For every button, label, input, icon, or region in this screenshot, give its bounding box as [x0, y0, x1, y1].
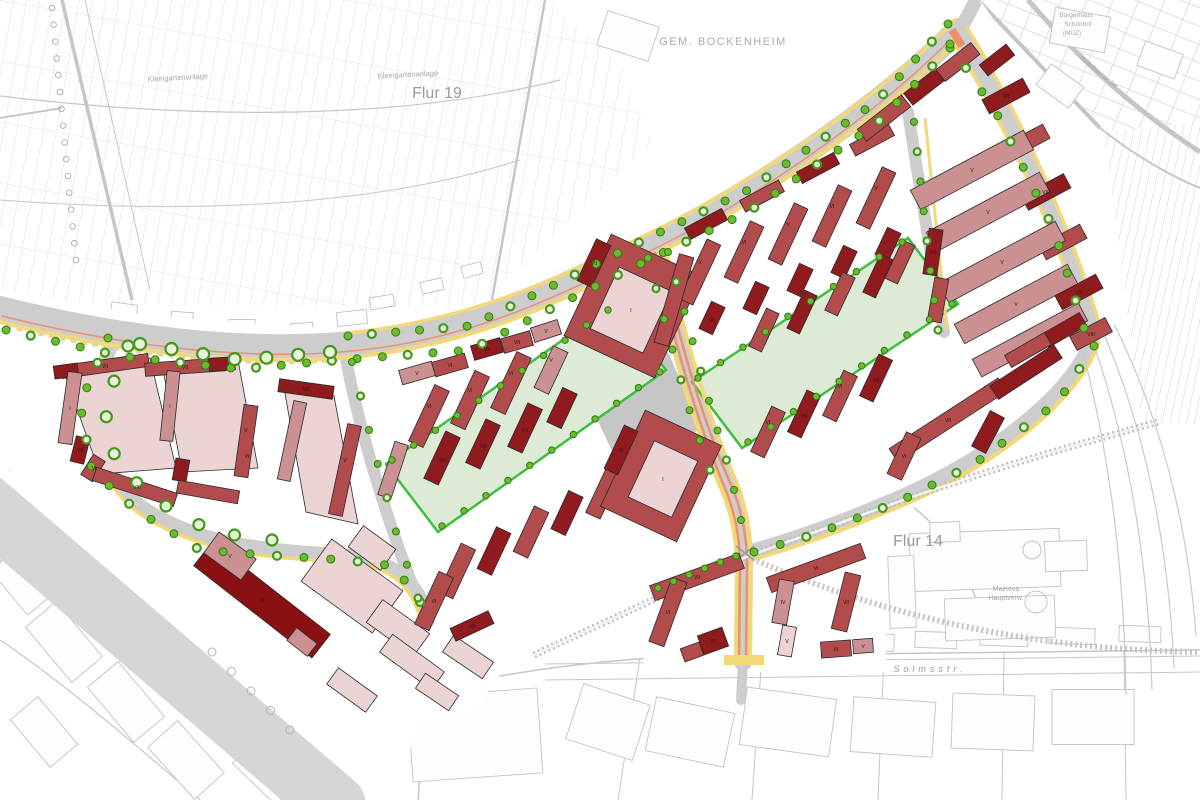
tree-symbol [344, 332, 352, 340]
tree-symbol [861, 106, 869, 114]
storey-label: IV [781, 600, 786, 606]
storey-label: XI [260, 598, 265, 604]
tree-symbol [686, 407, 693, 414]
tree-symbol [802, 533, 810, 541]
tree-symbol [895, 73, 903, 81]
tree-symbol [670, 578, 676, 584]
storey-label: VI [838, 384, 843, 390]
tree-symbol [614, 249, 622, 257]
tree-symbol [1019, 163, 1027, 171]
tree-symbol [101, 349, 109, 357]
tree-symbol [463, 322, 471, 330]
tree-symbol [415, 595, 422, 602]
storey-label: VI [448, 363, 453, 369]
tree-symbol [740, 344, 746, 350]
storey-label: VI [814, 566, 819, 572]
site-plan-map: VIIIVIIVIVIIIVIIIVVIVIIVXIVVVIVIIVIIVVIV… [0, 0, 1200, 800]
tree-symbol [926, 316, 932, 322]
storey-label: VII [801, 414, 807, 420]
tree-symbol [105, 482, 113, 490]
cadastral-building-outline [951, 693, 1035, 751]
storey-label: VI [92, 466, 97, 472]
storey-label: I [69, 406, 70, 412]
storey-label: VI [666, 610, 671, 616]
tree-symbol [505, 477, 511, 483]
cadastral-building-outline [1119, 625, 1162, 642]
tree-symbol [400, 576, 408, 584]
tree-symbol [416, 326, 424, 334]
storey-label: I [169, 404, 170, 410]
tree-symbol [879, 90, 887, 98]
cadastral-building-outline [10, 697, 77, 768]
tree-symbol [383, 494, 390, 501]
tree-symbol [911, 80, 919, 88]
tree-symbol [583, 322, 589, 328]
tree-symbol [76, 343, 84, 351]
tree-symbol [527, 462, 533, 468]
tree-symbol [696, 437, 703, 444]
tree-symbol [834, 146, 842, 154]
tree-symbol [1020, 423, 1028, 431]
tree-symbol [151, 356, 159, 364]
cadastral-building-outline [888, 556, 916, 629]
storey-label: III [834, 647, 838, 653]
tree-symbol [411, 442, 417, 448]
tree-symbol [109, 448, 120, 459]
tree-symbol [924, 237, 931, 244]
tree-symbol [109, 376, 120, 387]
tree-symbol [927, 267, 934, 274]
tree-symbol [126, 353, 134, 361]
tree-symbol [1075, 365, 1083, 373]
tree-symbol [678, 218, 686, 226]
tree-symbol [523, 317, 531, 325]
tree-symbol [705, 397, 712, 404]
tree-symbol [743, 187, 751, 195]
tree-symbol [822, 133, 830, 141]
tree-symbol [368, 330, 376, 338]
storey-label: VII [484, 347, 490, 353]
tree-symbol [714, 427, 721, 434]
tree-symbol [546, 305, 554, 313]
tree-symbol [614, 271, 622, 279]
tree-symbol [689, 338, 696, 345]
tree-symbol [976, 456, 984, 464]
cadastral-street-line [545, 672, 1200, 680]
tree-symbol [717, 559, 723, 565]
tree-symbol [392, 528, 399, 535]
tree-symbol [476, 397, 482, 403]
tree-symbol [354, 558, 362, 566]
tree-symbol [802, 146, 810, 154]
tree-symbol [792, 175, 800, 183]
tree-symbol [912, 55, 920, 63]
storey-label: VI [619, 448, 624, 454]
tree-symbol [750, 204, 758, 212]
tree-symbol [260, 352, 272, 364]
tree-symbol [83, 384, 91, 392]
tree-symbol [917, 178, 924, 185]
storey-label: VI [902, 454, 907, 460]
tree-symbol [962, 64, 970, 72]
tree-symbol [125, 500, 133, 508]
tree-symbol [454, 347, 462, 355]
storey-label: VI [468, 388, 473, 394]
tree-symbol [519, 367, 525, 373]
tree-symbol [273, 552, 281, 560]
map-label: Solmsstr. [893, 664, 966, 674]
tree-symbol [723, 457, 730, 464]
tree-symbol [673, 278, 680, 285]
tree-symbol [1061, 388, 1069, 396]
storey-label: VII [694, 575, 700, 581]
tree-symbol [229, 353, 241, 365]
tree-symbol [635, 384, 641, 390]
tree-symbol [591, 282, 599, 290]
tree-symbol [853, 514, 861, 522]
tree-symbol [366, 427, 373, 434]
storey-label: VI [766, 420, 771, 426]
tree-symbol [614, 400, 620, 406]
tree-symbol [454, 412, 460, 418]
tree-symbol [830, 283, 836, 289]
tree-symbol [549, 281, 557, 289]
tree-symbol [123, 341, 134, 352]
tree-symbol [202, 361, 210, 369]
tree-symbol [219, 548, 227, 556]
cadastral-building-outline [739, 687, 836, 757]
tree-symbol [429, 349, 437, 357]
tree-symbol [439, 324, 447, 332]
tree-symbol [700, 207, 708, 215]
tree-symbol [978, 88, 986, 96]
cadastral-building-outline [1044, 540, 1087, 571]
tree-symbol [828, 524, 836, 532]
tree-symbol [378, 353, 386, 361]
tree-symbol [653, 285, 660, 292]
storey-label: VII [469, 624, 475, 630]
tree-symbol [349, 359, 356, 366]
cadastral-region [1104, 122, 1200, 424]
tree-symbol [1045, 215, 1053, 223]
tree-symbol [807, 298, 813, 304]
tree-symbol [252, 364, 260, 372]
tree-symbol [686, 572, 692, 578]
tree-symbol [1042, 407, 1050, 415]
tree-symbol [170, 530, 178, 538]
tree-symbol [501, 328, 509, 336]
tree-symbol [813, 393, 819, 399]
storey-label: VII [873, 378, 879, 384]
tree-symbol [635, 239, 643, 247]
tree-symbol [357, 393, 364, 400]
tree-symbol [166, 343, 178, 355]
tree-symbol [549, 447, 555, 453]
tree-symbol [881, 347, 887, 353]
tree-symbol [879, 504, 887, 512]
tree-symbol [392, 328, 400, 336]
storey-label: VI [830, 204, 835, 210]
tree-symbol [197, 348, 209, 360]
tree-symbol [695, 375, 701, 381]
cadastral-building-outline [850, 697, 936, 758]
cadastral-building-outline [944, 595, 1055, 641]
tree-symbol [762, 173, 770, 181]
storey-label: VII [945, 418, 951, 424]
tree-symbol [855, 132, 863, 140]
tree-symbol [733, 553, 739, 559]
tree-symbol [745, 439, 751, 445]
tree-symbol [946, 40, 954, 48]
tree-symbol [2, 326, 10, 334]
tree-symbol [327, 555, 335, 563]
tree-symbol [300, 553, 308, 561]
storey-label: VII [709, 318, 715, 324]
tree-symbol [944, 20, 952, 28]
tree-symbol [292, 349, 304, 361]
tree-symbol [324, 346, 336, 358]
tree-symbol [374, 460, 381, 467]
tree-symbol [952, 469, 960, 477]
cadastral-building-outline [930, 521, 961, 542]
storey-label: VII [522, 428, 528, 434]
storey-label: VIII [133, 485, 141, 491]
storey-label: I [662, 477, 663, 483]
tree-symbol [381, 561, 389, 569]
map-label: GEM. BOCKENHEIM [659, 36, 787, 48]
tree-symbol [147, 515, 155, 523]
tree-symbol [389, 457, 395, 463]
tree-symbol [994, 112, 1002, 120]
tree-symbol [571, 271, 579, 279]
tree-symbol [605, 307, 611, 313]
tree-symbol [1063, 269, 1071, 277]
storey-label: VII [439, 458, 445, 464]
storey-label: VI [432, 599, 437, 605]
tree-symbol [928, 481, 936, 489]
storey-label: VII [77, 448, 83, 454]
tree-symbol [403, 561, 410, 568]
tree-symbol [762, 329, 768, 335]
tree-symbol [931, 297, 938, 304]
storey-label: VI [742, 240, 747, 246]
storey-label: VI [245, 454, 250, 460]
tree-symbol [750, 548, 758, 556]
storey-label: VI [427, 404, 432, 410]
tree-symbol [876, 254, 882, 260]
storey-label: VII [303, 387, 309, 393]
tree-symbol [637, 260, 645, 268]
tree-symbol [681, 308, 688, 315]
tree-symbol [1007, 138, 1015, 146]
storey-label: VII [1003, 94, 1009, 100]
tree-symbol [1090, 342, 1098, 350]
tree-symbol [267, 535, 278, 546]
tree-symbol [782, 160, 790, 168]
tree-symbol [785, 313, 791, 319]
tree-symbol [656, 228, 664, 236]
tree-symbol [27, 332, 35, 340]
tree-symbol [998, 439, 1006, 447]
tree-symbol [404, 351, 412, 359]
tree-symbol [193, 544, 201, 552]
tree-symbol [949, 301, 955, 307]
storey-label: VIII [1087, 332, 1095, 338]
tree-symbol [1080, 324, 1088, 332]
tree-symbol [697, 368, 704, 375]
tree-symbol [655, 585, 661, 591]
tree-symbol [920, 208, 927, 215]
tree-symbol [193, 519, 204, 530]
tree-symbol [83, 436, 91, 444]
tree-symbol [771, 189, 779, 197]
storey-label: VII [710, 639, 716, 645]
tree-symbol [935, 327, 942, 334]
tree-symbol [707, 467, 714, 474]
tree-symbol [899, 239, 905, 245]
tree-symbol [859, 363, 865, 369]
tree-symbol [569, 294, 577, 302]
tree-symbol [506, 302, 514, 310]
tree-symbol [813, 161, 821, 169]
cadastral-building-outline [336, 309, 367, 326]
tree-symbol [1072, 297, 1080, 305]
tree-symbol [701, 565, 707, 571]
storey-label: VII [930, 250, 936, 256]
tree-symbol [483, 493, 489, 499]
tree-symbol [665, 249, 672, 256]
tree-symbol [657, 369, 663, 375]
tree-symbol [485, 313, 493, 321]
tree-symbol [570, 431, 576, 437]
tree-symbol [790, 408, 796, 414]
tree-symbol [705, 227, 713, 235]
storey-label: I [630, 308, 631, 314]
storey-label: VII [182, 365, 188, 371]
tree-symbol [94, 359, 102, 367]
tree-symbol [928, 62, 936, 70]
storey-label: VI [509, 371, 514, 377]
tree-symbol [728, 216, 736, 224]
tree-symbol [497, 383, 503, 389]
tree-symbol [439, 523, 445, 529]
tree-symbol [677, 376, 684, 383]
tree-symbol [1055, 242, 1063, 250]
tree-symbol [682, 238, 690, 246]
tree-symbol [928, 38, 936, 46]
storey-label: VII [102, 364, 108, 370]
cadastral-building-outline [645, 697, 735, 767]
storey-label: VII [514, 340, 520, 346]
tree-symbol [562, 337, 568, 343]
tree-symbol [432, 427, 438, 433]
tree-symbol [853, 268, 859, 274]
tree-symbol [841, 119, 849, 127]
storey-label: VIII [1042, 190, 1050, 196]
road [741, 660, 743, 700]
tree-symbol [461, 508, 467, 514]
tree-symbol [528, 292, 536, 300]
tree-symbol [717, 359, 723, 365]
tree-symbol [104, 334, 112, 342]
tree-symbol [731, 486, 738, 493]
tree-symbol [277, 361, 285, 369]
tree-symbol [914, 148, 921, 155]
cadastral-building-outline [566, 684, 650, 761]
storey-label: VII [591, 261, 597, 267]
tree-symbol [134, 338, 146, 350]
tree-symbol [645, 255, 652, 262]
tree-symbol [911, 119, 918, 126]
tree-symbol [1032, 189, 1040, 197]
tree-symbol [101, 411, 112, 422]
tree-symbol [721, 197, 729, 205]
tree-symbol [738, 517, 745, 524]
tree-symbol [229, 530, 240, 541]
tree-symbol [78, 409, 86, 417]
tree-symbol [161, 501, 172, 512]
storey-label: VII [480, 444, 486, 450]
cadastral-building-outline [1052, 690, 1134, 745]
storey-label: VII [1076, 290, 1082, 296]
tree-symbol [52, 337, 60, 345]
tree-symbol [246, 550, 254, 558]
tree-symbol [661, 316, 668, 323]
tree-symbol [669, 346, 676, 353]
tree-symbol [592, 416, 598, 422]
storey-label: VII [843, 600, 849, 606]
tree-symbol [776, 540, 784, 548]
tree-symbol [875, 117, 883, 125]
tree-symbol [893, 99, 901, 107]
tree-symbol [540, 352, 546, 358]
tree-symbol [303, 359, 311, 367]
tree-symbol [904, 493, 912, 501]
tree-symbol [904, 332, 910, 338]
